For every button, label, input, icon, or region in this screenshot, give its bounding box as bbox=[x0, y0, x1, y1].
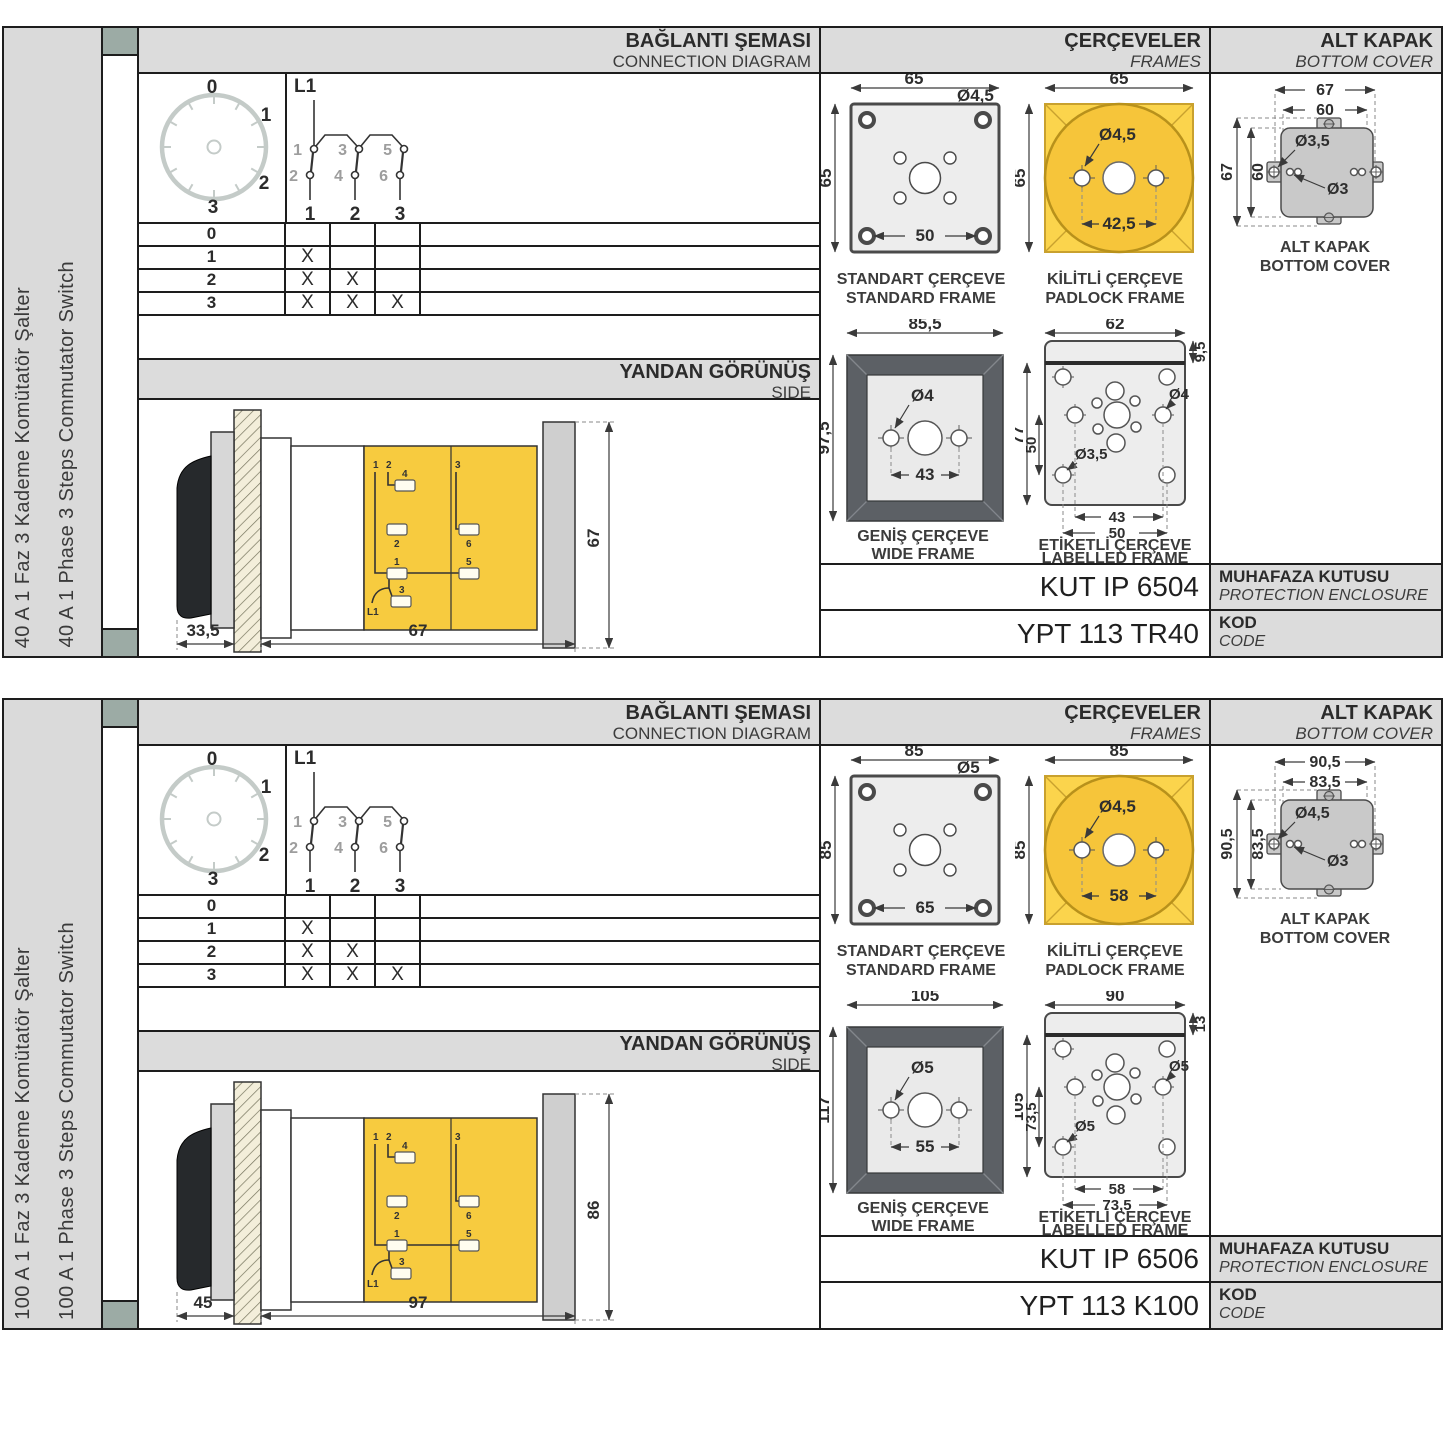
table-grid-end bbox=[419, 270, 421, 291]
padlock-frame-hole-dia: Ø4,5 bbox=[1099, 125, 1136, 144]
cover-dia-small: Ø3 bbox=[1327, 181, 1348, 198]
wide-frame-drawing: 105 117 Ø5 55 GENİŞ ÇERÇEVE WIDE bbox=[821, 991, 1015, 1235]
dial-position-0: 0 bbox=[207, 749, 218, 770]
frames-panel: 85 Ø5 85 65 STANDART ÇERÇEVE STANDARD FR… bbox=[821, 746, 1211, 1235]
product-title-turkish: 100 A 1 Faz 3 Kademe Komütatör Şalter bbox=[12, 947, 35, 1320]
mark-cell: X bbox=[284, 942, 329, 963]
contact-6: 6 bbox=[379, 168, 388, 185]
terminal-label: 5 bbox=[466, 557, 472, 568]
dial-position-2: 2 bbox=[259, 173, 270, 194]
row-label: 3 bbox=[139, 293, 284, 314]
wide-frame-height: 97,5 bbox=[821, 421, 833, 454]
section-header-row: BAĞLANTI ŞEMASI CONNECTION DIAGRAM ÇERÇE… bbox=[139, 28, 1441, 74]
standard-frame-height: 65 bbox=[821, 169, 835, 188]
terminal-label: 6 bbox=[466, 1211, 472, 1222]
contact-5: 5 bbox=[383, 814, 392, 831]
output-3: 3 bbox=[395, 204, 406, 222]
section-header-row: BAĞLANTI ŞEMASI CONNECTION DIAGRAM ÇERÇE… bbox=[139, 700, 1441, 746]
side-view-drawing: 1 2 4 2 1 3 L1 3 6 5 45 bbox=[139, 1072, 819, 1328]
cover-outer-width: 67 bbox=[1316, 82, 1334, 99]
terminal-label: 4 bbox=[402, 1141, 408, 1152]
mark-cell: X bbox=[329, 270, 374, 291]
contact-3: 3 bbox=[338, 814, 347, 831]
table-grid-end bbox=[419, 965, 421, 986]
labelled-frame-inner-height: 73,5 bbox=[1023, 1102, 1040, 1131]
terminal-label: 1 bbox=[394, 557, 400, 568]
terminal-label: L1 bbox=[367, 1279, 379, 1290]
header-bottom-cover: ALT KAPAK BOTTOM COVER bbox=[1211, 28, 1441, 74]
standard-frame-caption-en: STANDARD FRAME bbox=[846, 962, 996, 979]
padlock-frame-height: 65 bbox=[1015, 169, 1029, 188]
connection-diagram-panel: 0 1 2 3 L1 bbox=[139, 74, 821, 656]
table-grid-end bbox=[419, 293, 421, 314]
dial-and-circuit-drawing: 0 1 2 3 L1 bbox=[139, 74, 819, 222]
wide-frame-caption-tr: GENİŞ ÇERÇEVE bbox=[857, 527, 989, 545]
dim-body-height: 67 bbox=[584, 529, 603, 548]
cover-dia-big: Ø3,5 bbox=[1295, 133, 1330, 150]
dim-body-length: 97 bbox=[409, 1293, 428, 1312]
registration-mark-top bbox=[103, 28, 137, 56]
feed-label: L1 bbox=[294, 76, 317, 97]
catalog-page: 40 A 1 Faz 3 Kademe Komütatör Şalter 40 … bbox=[0, 0, 1445, 1445]
contact-2: 2 bbox=[289, 840, 298, 857]
labelled-frame-inner-spacing: 43 bbox=[1109, 509, 1126, 526]
mark-cell bbox=[374, 224, 419, 245]
header-bottom-cover-tr: ALT KAPAK bbox=[1211, 702, 1433, 724]
enclosure-row: KUT IP 6504 MUHAFAZA KUTUSU PROTECTION E… bbox=[821, 563, 1441, 609]
table-grid-end bbox=[419, 247, 421, 268]
bottom-cover-drawing: 90,5 83,5 90,5 83,5 bbox=[1211, 746, 1439, 996]
dial-position-1: 1 bbox=[261, 777, 272, 798]
table-row: 1 X bbox=[139, 917, 819, 940]
product-code-label-en: CODE bbox=[1219, 633, 1441, 651]
switch-side-view: 1 2 4 2 1 3 L1 3 6 5 33,5 bbox=[177, 410, 617, 652]
step-contact-table: 0 1 X 2 X X 3 X bbox=[139, 894, 819, 988]
standard-frame-caption-tr: STANDART ÇERÇEVE bbox=[837, 271, 1006, 288]
standard-frame-drawing: 65 Ø4,5 65 50 STANDART ÇERÇEVE STANDARD … bbox=[821, 74, 1015, 319]
table-row: 2 X X bbox=[139, 268, 819, 291]
enclosure-code: KUT IP 6506 bbox=[821, 1237, 1211, 1281]
dim-front-depth: 45 bbox=[194, 1293, 213, 1312]
enclosure-label-tr: MUHAFAZA KUTUSU bbox=[1219, 567, 1441, 587]
header-connection-diagram: BAĞLANTI ŞEMASI CONNECTION DIAGRAM bbox=[139, 700, 821, 746]
terminal-label: 1 bbox=[373, 1132, 379, 1143]
mark-cell: X bbox=[284, 270, 329, 291]
mark-cell bbox=[329, 224, 374, 245]
terminal-label: 5 bbox=[466, 1229, 472, 1240]
enclosure-label-tr: MUHAFAZA KUTUSU bbox=[1219, 1239, 1441, 1259]
switch-circuit: L1 1 3 5 2 4 6 bbox=[289, 748, 407, 894]
padlock-frame-hole-spacing: 42,5 bbox=[1102, 214, 1135, 233]
labelled-frame-drawing: 90 13 105 73,5 bbox=[1015, 991, 1209, 1235]
terminal-label: 2 bbox=[394, 539, 400, 550]
mark-cell: X bbox=[284, 247, 329, 268]
header-connection-diagram-en: CONNECTION DIAGRAM bbox=[139, 724, 811, 743]
step-contact-table: 0 1 X 2 X X 3 X bbox=[139, 222, 819, 316]
padlock-frame-caption-tr: KİLİTLİ ÇERÇEVE bbox=[1047, 270, 1183, 288]
switch-circuit: L1 1 3 5 2 4 6 bbox=[289, 76, 407, 222]
registration-mark-bottom bbox=[103, 628, 137, 656]
wide-frame-hole-spacing: 55 bbox=[916, 1137, 935, 1156]
dial-position-1: 1 bbox=[261, 105, 272, 126]
end-plate bbox=[543, 422, 575, 648]
header-connection-diagram-tr: BAĞLANTI ŞEMASI bbox=[139, 30, 811, 52]
padlock-frame-hole-dia: Ø4,5 bbox=[1099, 797, 1136, 816]
table-row: 3 X X X bbox=[139, 963, 819, 988]
mark-cell bbox=[374, 942, 419, 963]
padlock-frame-drawing: 85 85 Ø4,5 58 KİLİTLİ ÇERÇEVE PA bbox=[1015, 746, 1209, 991]
table-grid-end bbox=[419, 224, 421, 245]
cover-caption-tr: ALT KAPAK bbox=[1280, 911, 1371, 928]
switch-handle bbox=[177, 456, 211, 618]
mark-cell bbox=[329, 247, 374, 268]
contact-5: 5 bbox=[383, 142, 392, 159]
cover-outer-height: 67 bbox=[1219, 163, 1236, 181]
labelled-frame-inner-height: 50 bbox=[1023, 437, 1040, 454]
enclosure-label-en: PROTECTION ENCLOSURE bbox=[1219, 587, 1441, 605]
registration-mark-top bbox=[103, 700, 137, 728]
enclosure-label: MUHAFAZA KUTUSU PROTECTION ENCLOSURE bbox=[1211, 1237, 1441, 1281]
side-view-header: YANDAN GÖRÜNÜŞ SIDE bbox=[139, 358, 819, 400]
output-3: 3 bbox=[395, 876, 406, 894]
wide-frame-caption-tr: GENİŞ ÇERÇEVE bbox=[857, 1199, 989, 1217]
selector-dial: 0 1 2 3 bbox=[162, 749, 272, 890]
product-code-label: KOD CODE bbox=[1211, 611, 1441, 656]
cover-inner-width: 60 bbox=[1316, 102, 1334, 119]
contact-4: 4 bbox=[334, 840, 343, 857]
contact-1: 1 bbox=[293, 814, 302, 831]
section-sidebar: 40 A 1 Faz 3 Kademe Komütatör Şalter 40 … bbox=[4, 28, 103, 656]
product-title-turkish: 40 A 1 Faz 3 Kademe Komütatör Şalter bbox=[12, 287, 35, 648]
switch-side-view: 1 2 4 2 1 3 L1 3 6 5 45 bbox=[177, 1082, 617, 1324]
terminal-label: 2 bbox=[386, 460, 392, 471]
cover-outer-height: 90,5 bbox=[1219, 828, 1236, 859]
row-label: 1 bbox=[139, 919, 284, 940]
standard-frame-width: 85 bbox=[905, 746, 924, 760]
header-bottom-cover-en: BOTTOM COVER bbox=[1211, 52, 1433, 71]
enclosure-code: KUT IP 6504 bbox=[821, 565, 1211, 609]
row-label: 2 bbox=[139, 270, 284, 291]
labelled-frame-strip-height: 13 bbox=[1192, 1016, 1209, 1033]
header-frames-tr: ÇERÇEVELER bbox=[821, 702, 1201, 724]
margin-strip bbox=[103, 28, 139, 656]
enclosure-label-en: PROTECTION ENCLOSURE bbox=[1219, 1259, 1441, 1277]
terminal-label: 2 bbox=[386, 1132, 392, 1143]
header-bottom-cover-tr: ALT KAPAK bbox=[1211, 30, 1433, 52]
section-sidebar: 100 A 1 Faz 3 Kademe Komütatör Şalter 10… bbox=[4, 700, 103, 1328]
product-code-row: YPT 113 K100 KOD CODE bbox=[821, 1281, 1441, 1328]
terminal-label: 6 bbox=[466, 539, 472, 550]
standard-frame-hole-dia: Ø4,5 bbox=[957, 86, 994, 105]
header-frames: ÇERÇEVELER FRAMES bbox=[821, 28, 1211, 74]
mark-cell: X bbox=[284, 919, 329, 940]
enclosure-row: KUT IP 6506 MUHAFAZA KUTUSU PROTECTION E… bbox=[821, 1235, 1441, 1281]
product-title-english: 100 A 1 Phase 3 Steps Commutator Switch bbox=[56, 922, 79, 1320]
wide-frame-hole-dia: Ø5 bbox=[911, 1058, 934, 1077]
contact-4: 4 bbox=[334, 168, 343, 185]
labelled-frame-dia-left: Ø3,5 bbox=[1075, 446, 1108, 463]
wide-frame-hole-dia: Ø4 bbox=[911, 386, 934, 405]
wide-frame-width: 105 bbox=[911, 991, 939, 1005]
standard-frame-width: 65 bbox=[905, 74, 924, 88]
product-title-english: 40 A 1 Phase 3 Steps Commutator Switch bbox=[56, 261, 79, 648]
mark-cell: X bbox=[284, 965, 329, 986]
product-code-label-tr: KOD bbox=[1219, 1285, 1441, 1305]
contact-3: 3 bbox=[338, 142, 347, 159]
header-frames-en: FRAMES bbox=[821, 52, 1201, 71]
cover-inner-height: 83,5 bbox=[1250, 828, 1267, 859]
bottom-cover-panel: 67 60 67 60 bbox=[1211, 74, 1441, 563]
output-1: 1 bbox=[305, 876, 316, 894]
wide-frame-drawing: 85,5 97,5 Ø4 43 GENİŞ ÇERÇEVE WI bbox=[821, 319, 1015, 563]
labelled-frame-width: 90 bbox=[1106, 991, 1125, 1005]
margin-strip bbox=[103, 700, 139, 1328]
product-code-label-tr: KOD bbox=[1219, 613, 1441, 633]
bottom-cover-drawing: 67 60 67 60 bbox=[1211, 74, 1439, 324]
cover-caption-en: BOTTOM COVER bbox=[1260, 258, 1391, 275]
end-plate bbox=[543, 1094, 575, 1320]
product-code: YPT 113 TR40 bbox=[821, 611, 1211, 656]
output-1: 1 bbox=[305, 204, 316, 222]
wide-frame-hole-spacing: 43 bbox=[916, 465, 935, 484]
product-code-label: KOD CODE bbox=[1211, 1283, 1441, 1328]
contact-6: 6 bbox=[379, 840, 388, 857]
padlock-frame-width: 65 bbox=[1110, 74, 1129, 88]
side-view-header-tr: YANDAN GÖRÜNÜŞ bbox=[139, 361, 811, 383]
table-row: 0 bbox=[139, 894, 819, 917]
dial-position-2: 2 bbox=[259, 845, 270, 866]
standard-frame-caption-tr: STANDART ÇERÇEVE bbox=[837, 943, 1006, 960]
connection-diagram-panel: 0 1 2 3 L1 bbox=[139, 746, 821, 1328]
cover-caption-tr: ALT KAPAK bbox=[1280, 239, 1371, 256]
mark-cell bbox=[284, 896, 329, 917]
header-frames-tr: ÇERÇEVELER bbox=[821, 30, 1201, 52]
mark-cell: X bbox=[329, 965, 374, 986]
padlock-frame-hole-spacing: 58 bbox=[1110, 886, 1129, 905]
padlock-frame-caption-tr: KİLİTLİ ÇERÇEVE bbox=[1047, 942, 1183, 960]
frames-panel: 65 Ø4,5 65 50 STANDART ÇERÇEVE STANDARD … bbox=[821, 74, 1211, 563]
switch-handle bbox=[177, 1128, 211, 1290]
terminal-label: 3 bbox=[399, 1257, 405, 1268]
padlock-frame-drawing: 65 65 Ø4,5 42,5 KİLİTLİ ÇERÇEVE bbox=[1015, 74, 1209, 319]
mark-cell bbox=[329, 919, 374, 940]
header-connection-diagram-tr: BAĞLANTI ŞEMASI bbox=[139, 702, 811, 724]
wide-frame-caption-en: WIDE FRAME bbox=[871, 546, 974, 563]
mark-cell bbox=[284, 224, 329, 245]
mark-cell: X bbox=[329, 293, 374, 314]
mark-cell bbox=[374, 896, 419, 917]
header-connection-diagram: BAĞLANTI ŞEMASI CONNECTION DIAGRAM bbox=[139, 28, 821, 74]
labelled-frame-strip-height: 9,5 bbox=[1192, 342, 1209, 363]
header-frames: ÇERÇEVELER FRAMES bbox=[821, 700, 1211, 746]
labelled-frame-caption-en: LABELLED FRAME bbox=[1042, 550, 1189, 563]
row-label: 3 bbox=[139, 965, 284, 986]
labelled-frame-dia-right: Ø4 bbox=[1169, 386, 1190, 403]
side-view-drawing: 1 2 4 2 1 3 L1 3 6 5 33,5 bbox=[139, 400, 819, 656]
labelled-frame-drawing: 62 9,5 77 50 bbox=[1015, 319, 1209, 563]
dial-position-3: 3 bbox=[208, 197, 219, 218]
header-bottom-cover: ALT KAPAK BOTTOM COVER bbox=[1211, 700, 1441, 746]
row-label: 1 bbox=[139, 247, 284, 268]
row-label: 0 bbox=[139, 896, 284, 917]
wide-frame-width: 85,5 bbox=[908, 319, 941, 333]
enclosure-label: MUHAFAZA KUTUSU PROTECTION ENCLOSURE bbox=[1211, 565, 1441, 609]
terminal-label: 3 bbox=[399, 585, 405, 596]
mark-cell bbox=[374, 919, 419, 940]
padlock-frame-height: 85 bbox=[1015, 841, 1029, 860]
output-2: 2 bbox=[350, 204, 361, 222]
terminal-label: L1 bbox=[367, 607, 379, 618]
dial-and-circuit-drawing: 0 1 2 3 L1 bbox=[139, 746, 819, 894]
row-label: 0 bbox=[139, 224, 284, 245]
table-row: 2 X X bbox=[139, 940, 819, 963]
table-row: 3 X X X bbox=[139, 291, 819, 316]
cover-dia-small: Ø3 bbox=[1327, 853, 1348, 870]
standard-frame-hole-spacing: 50 bbox=[916, 226, 935, 245]
mark-cell bbox=[329, 896, 374, 917]
table-row: 0 bbox=[139, 222, 819, 245]
table-grid-end bbox=[419, 942, 421, 963]
labelled-frame-dia-left: Ø5 bbox=[1075, 1118, 1095, 1135]
terminal-label: 3 bbox=[455, 460, 461, 471]
mark-cell: X bbox=[374, 965, 419, 986]
standard-frame-height: 85 bbox=[821, 841, 835, 860]
padlock-frame-caption-en: PADLOCK FRAME bbox=[1045, 962, 1185, 979]
contact-2: 2 bbox=[289, 168, 298, 185]
product-code-label-en: CODE bbox=[1219, 1305, 1441, 1323]
wide-frame-caption-en: WIDE FRAME bbox=[871, 1218, 974, 1235]
product-code-row: YPT 113 TR40 KOD CODE bbox=[821, 609, 1441, 656]
wide-frame-height: 117 bbox=[821, 1096, 833, 1123]
padlock-frame-caption-en: PADLOCK FRAME bbox=[1045, 290, 1185, 307]
contact-1: 1 bbox=[293, 142, 302, 159]
dim-body-height: 86 bbox=[584, 1201, 603, 1220]
cover-outer-width: 90,5 bbox=[1309, 754, 1340, 771]
product-section: 40 A 1 Faz 3 Kademe Komütatör Şalter 40 … bbox=[2, 26, 1443, 658]
dial-position-0: 0 bbox=[207, 77, 218, 98]
mark-cell bbox=[374, 247, 419, 268]
dim-body-length: 67 bbox=[409, 621, 428, 640]
table-row: 1 X bbox=[139, 245, 819, 268]
terminal-label: 4 bbox=[402, 469, 408, 480]
header-connection-diagram-en: CONNECTION DIAGRAM bbox=[139, 52, 811, 71]
dial-position-3: 3 bbox=[208, 869, 219, 890]
mark-cell: X bbox=[284, 293, 329, 314]
feed-label: L1 bbox=[294, 748, 317, 769]
side-view-header: YANDAN GÖRÜNÜŞ SIDE bbox=[139, 1030, 819, 1072]
terminal-label: 3 bbox=[455, 1132, 461, 1143]
selector-dial: 0 1 2 3 bbox=[162, 77, 272, 218]
dim-front-depth: 33,5 bbox=[186, 621, 219, 640]
mark-cell: X bbox=[374, 293, 419, 314]
table-grid-end bbox=[419, 919, 421, 940]
cover-dia-big: Ø4,5 bbox=[1295, 805, 1330, 822]
output-2: 2 bbox=[350, 876, 361, 894]
header-bottom-cover-en: BOTTOM COVER bbox=[1211, 724, 1433, 743]
mark-cell bbox=[374, 270, 419, 291]
product-code: YPT 113 K100 bbox=[821, 1283, 1211, 1328]
bottom-cover-panel: 90,5 83,5 90,5 83,5 bbox=[1211, 746, 1441, 1235]
standard-frame-hole-dia: Ø5 bbox=[957, 758, 980, 777]
row-label: 2 bbox=[139, 942, 284, 963]
padlock-frame-width: 85 bbox=[1110, 746, 1129, 760]
standard-frame-hole-spacing: 65 bbox=[916, 898, 935, 917]
cover-caption-en: BOTTOM COVER bbox=[1260, 930, 1391, 947]
labelled-frame-width: 62 bbox=[1106, 319, 1125, 333]
labelled-frame-inner-spacing: 58 bbox=[1109, 1181, 1126, 1198]
registration-mark-bottom bbox=[103, 1300, 137, 1328]
terminal-label: 1 bbox=[394, 1229, 400, 1240]
product-section: 100 A 1 Faz 3 Kademe Komütatör Şalter 10… bbox=[2, 698, 1443, 1330]
mark-cell: X bbox=[329, 942, 374, 963]
cover-inner-width: 83,5 bbox=[1309, 774, 1340, 791]
standard-frame-drawing: 85 Ø5 85 65 STANDART ÇERÇEVE STANDARD FR… bbox=[821, 746, 1015, 991]
side-view-header-tr: YANDAN GÖRÜNÜŞ bbox=[139, 1033, 811, 1055]
standard-frame-caption-en: STANDARD FRAME bbox=[846, 290, 996, 307]
labelled-frame-caption-en: LABELLED FRAME bbox=[1042, 1222, 1189, 1235]
table-grid-end bbox=[419, 896, 421, 917]
header-frames-en: FRAMES bbox=[821, 724, 1201, 743]
terminal-label: 2 bbox=[394, 1211, 400, 1222]
labelled-frame-dia-right: Ø5 bbox=[1169, 1058, 1189, 1075]
terminal-label: 1 bbox=[373, 460, 379, 471]
cover-inner-height: 60 bbox=[1250, 163, 1267, 181]
